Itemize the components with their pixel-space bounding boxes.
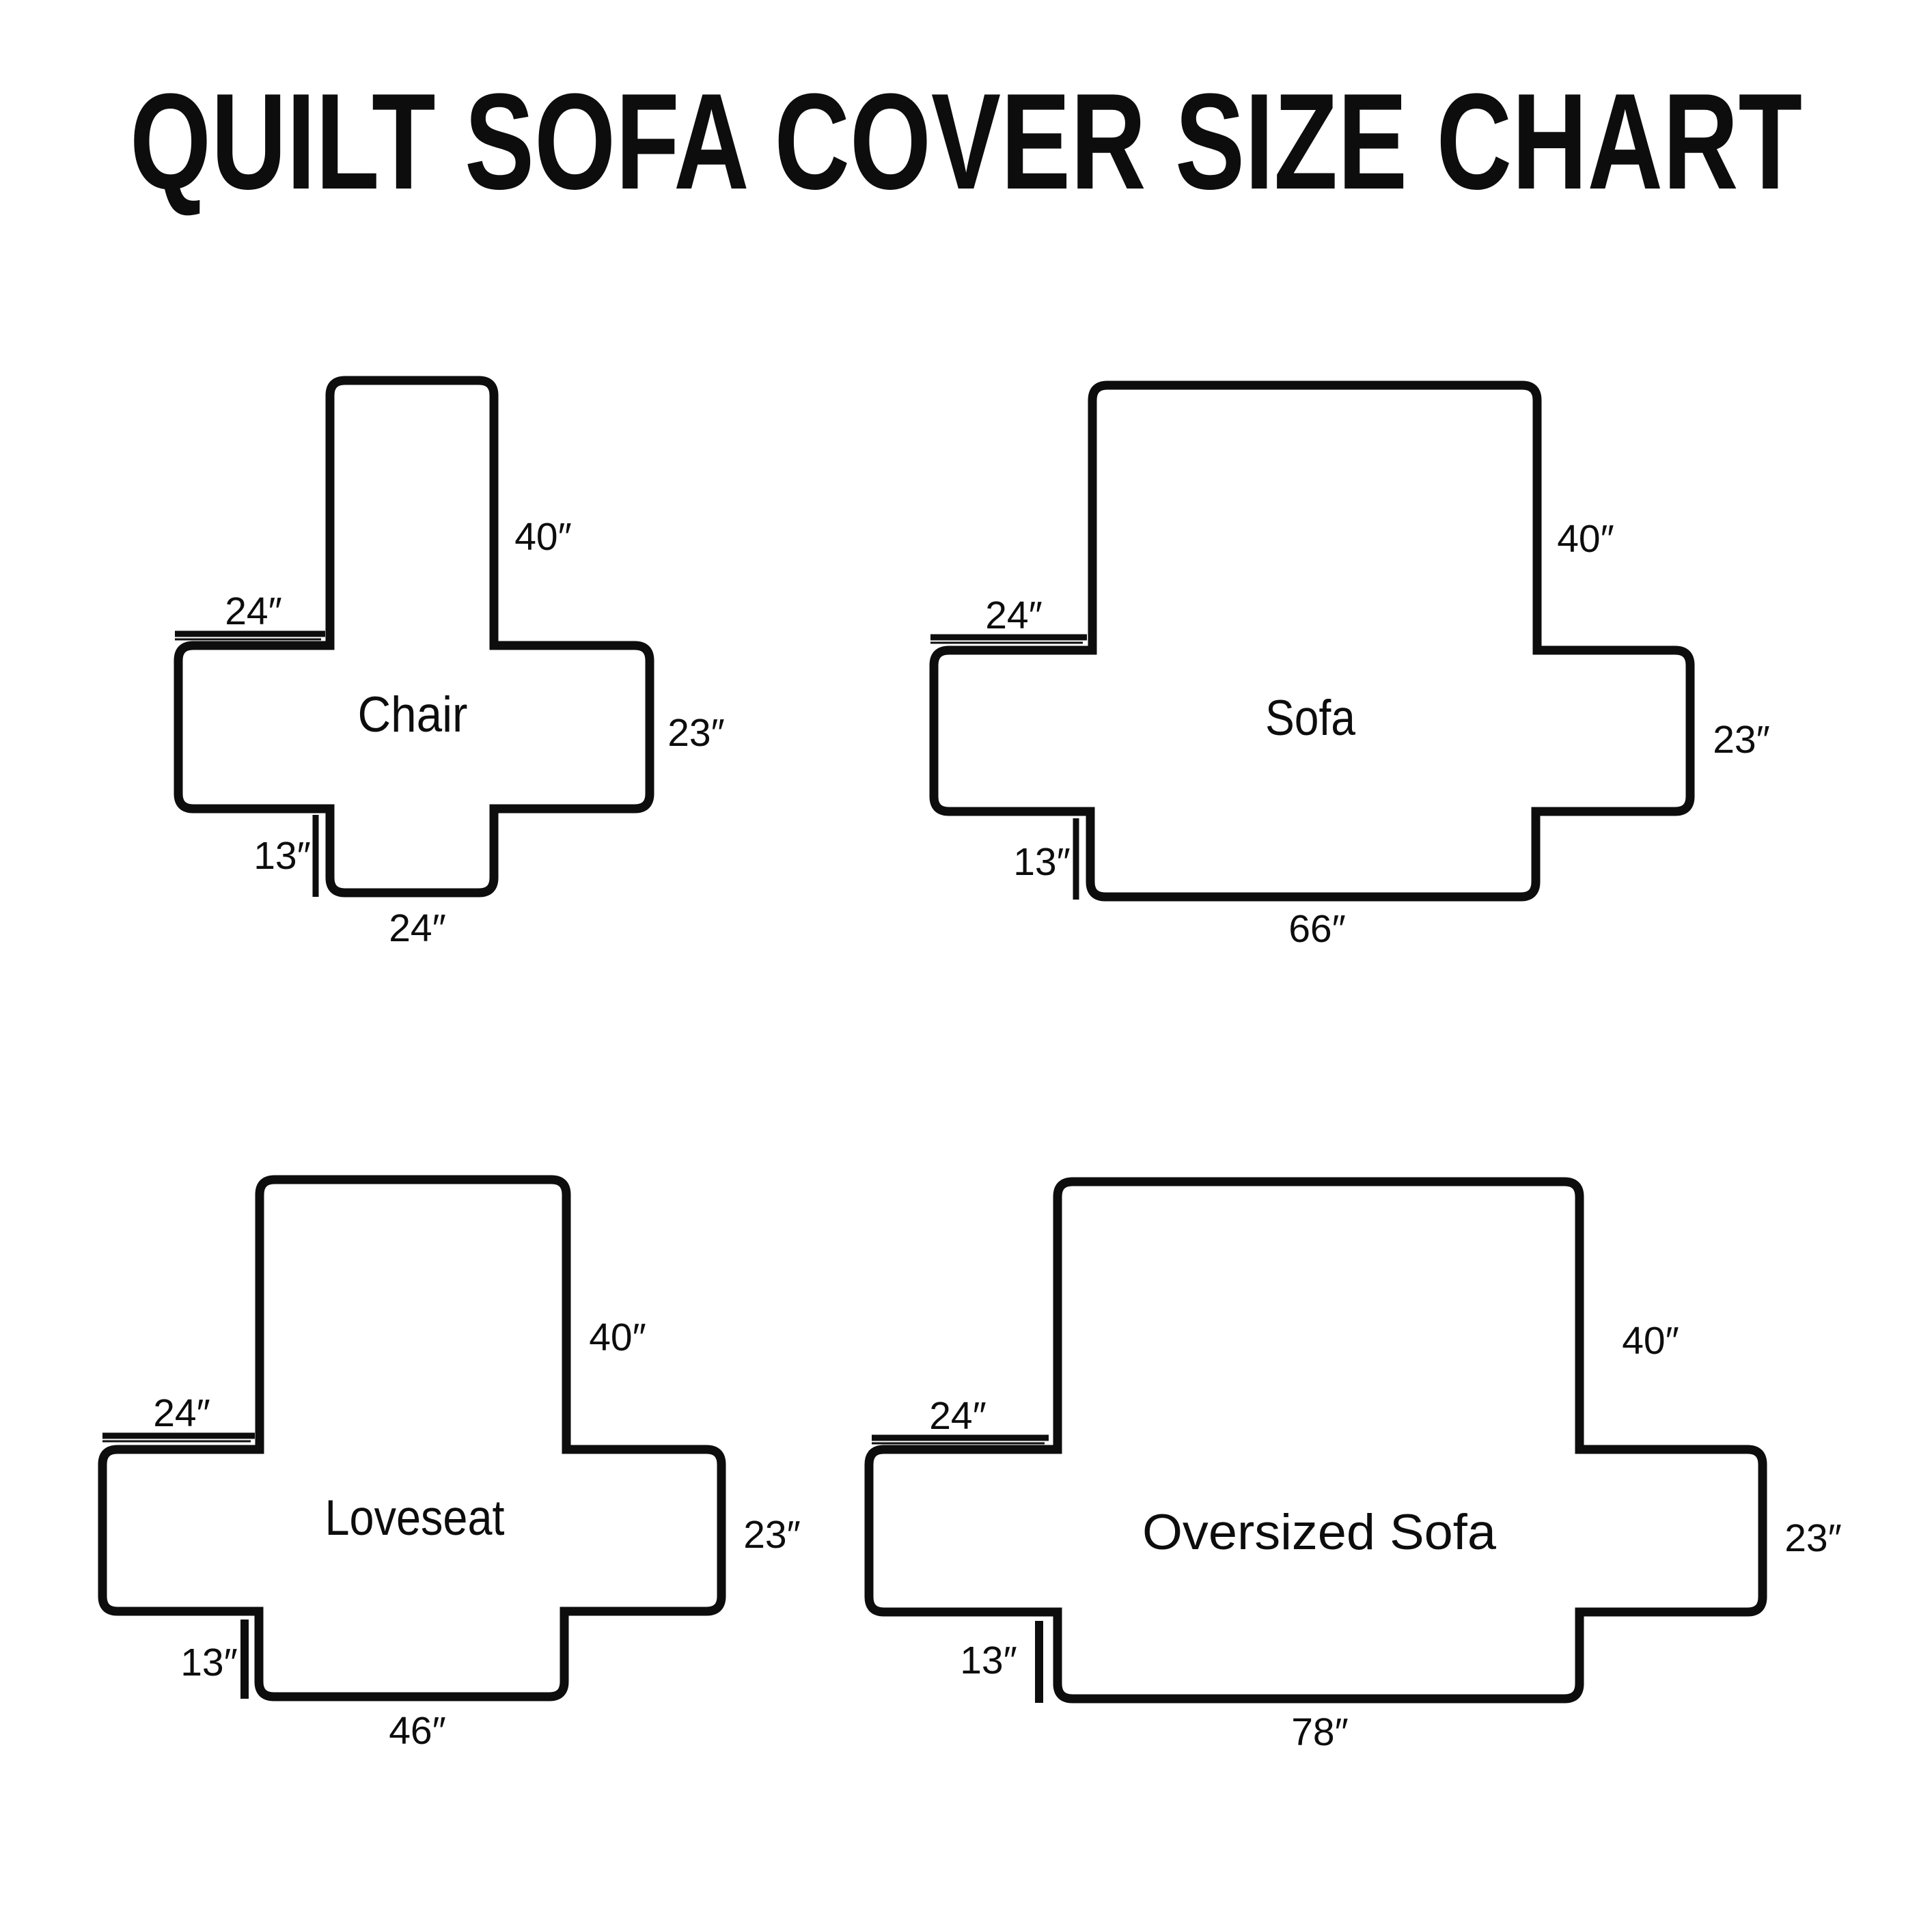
svg-text:24″: 24″	[153, 1391, 210, 1435]
svg-text:40″: 40″	[514, 515, 572, 559]
svg-text:23″: 23″	[1713, 718, 1770, 762]
svg-text:Chair: Chair	[358, 687, 468, 742]
svg-text:13″: 13″	[180, 1641, 238, 1684]
svg-text:23″: 23″	[667, 711, 725, 755]
svg-text:Oversized Sofa: Oversized Sofa	[1142, 1505, 1496, 1560]
svg-text:23″: 23″	[743, 1513, 801, 1557]
svg-text:46″: 46″	[389, 1709, 446, 1753]
svg-text:13″: 13″	[960, 1639, 1017, 1682]
svg-text:Loveseat: Loveseat	[325, 1490, 505, 1546]
svg-text:24″: 24″	[389, 906, 446, 950]
svg-text:13″: 13″	[253, 834, 311, 878]
svg-text:24″: 24″	[985, 594, 1043, 637]
svg-text:QUILT SOFA COVER SIZE CHART: QUILT SOFA COVER SIZE CHART	[130, 66, 1802, 218]
svg-text:24″: 24″	[929, 1394, 986, 1438]
svg-text:24″: 24″	[225, 589, 282, 633]
svg-text:40″: 40″	[1622, 1319, 1679, 1363]
svg-text:66″: 66″	[1288, 907, 1346, 951]
svg-text:23″: 23″	[1784, 1516, 1842, 1560]
svg-text:13″: 13″	[1013, 840, 1071, 884]
svg-text:40″: 40″	[1557, 517, 1614, 561]
svg-text:40″: 40″	[589, 1316, 646, 1359]
svg-text:Sofa: Sofa	[1265, 691, 1355, 746]
svg-text:78″: 78″	[1291, 1710, 1349, 1754]
